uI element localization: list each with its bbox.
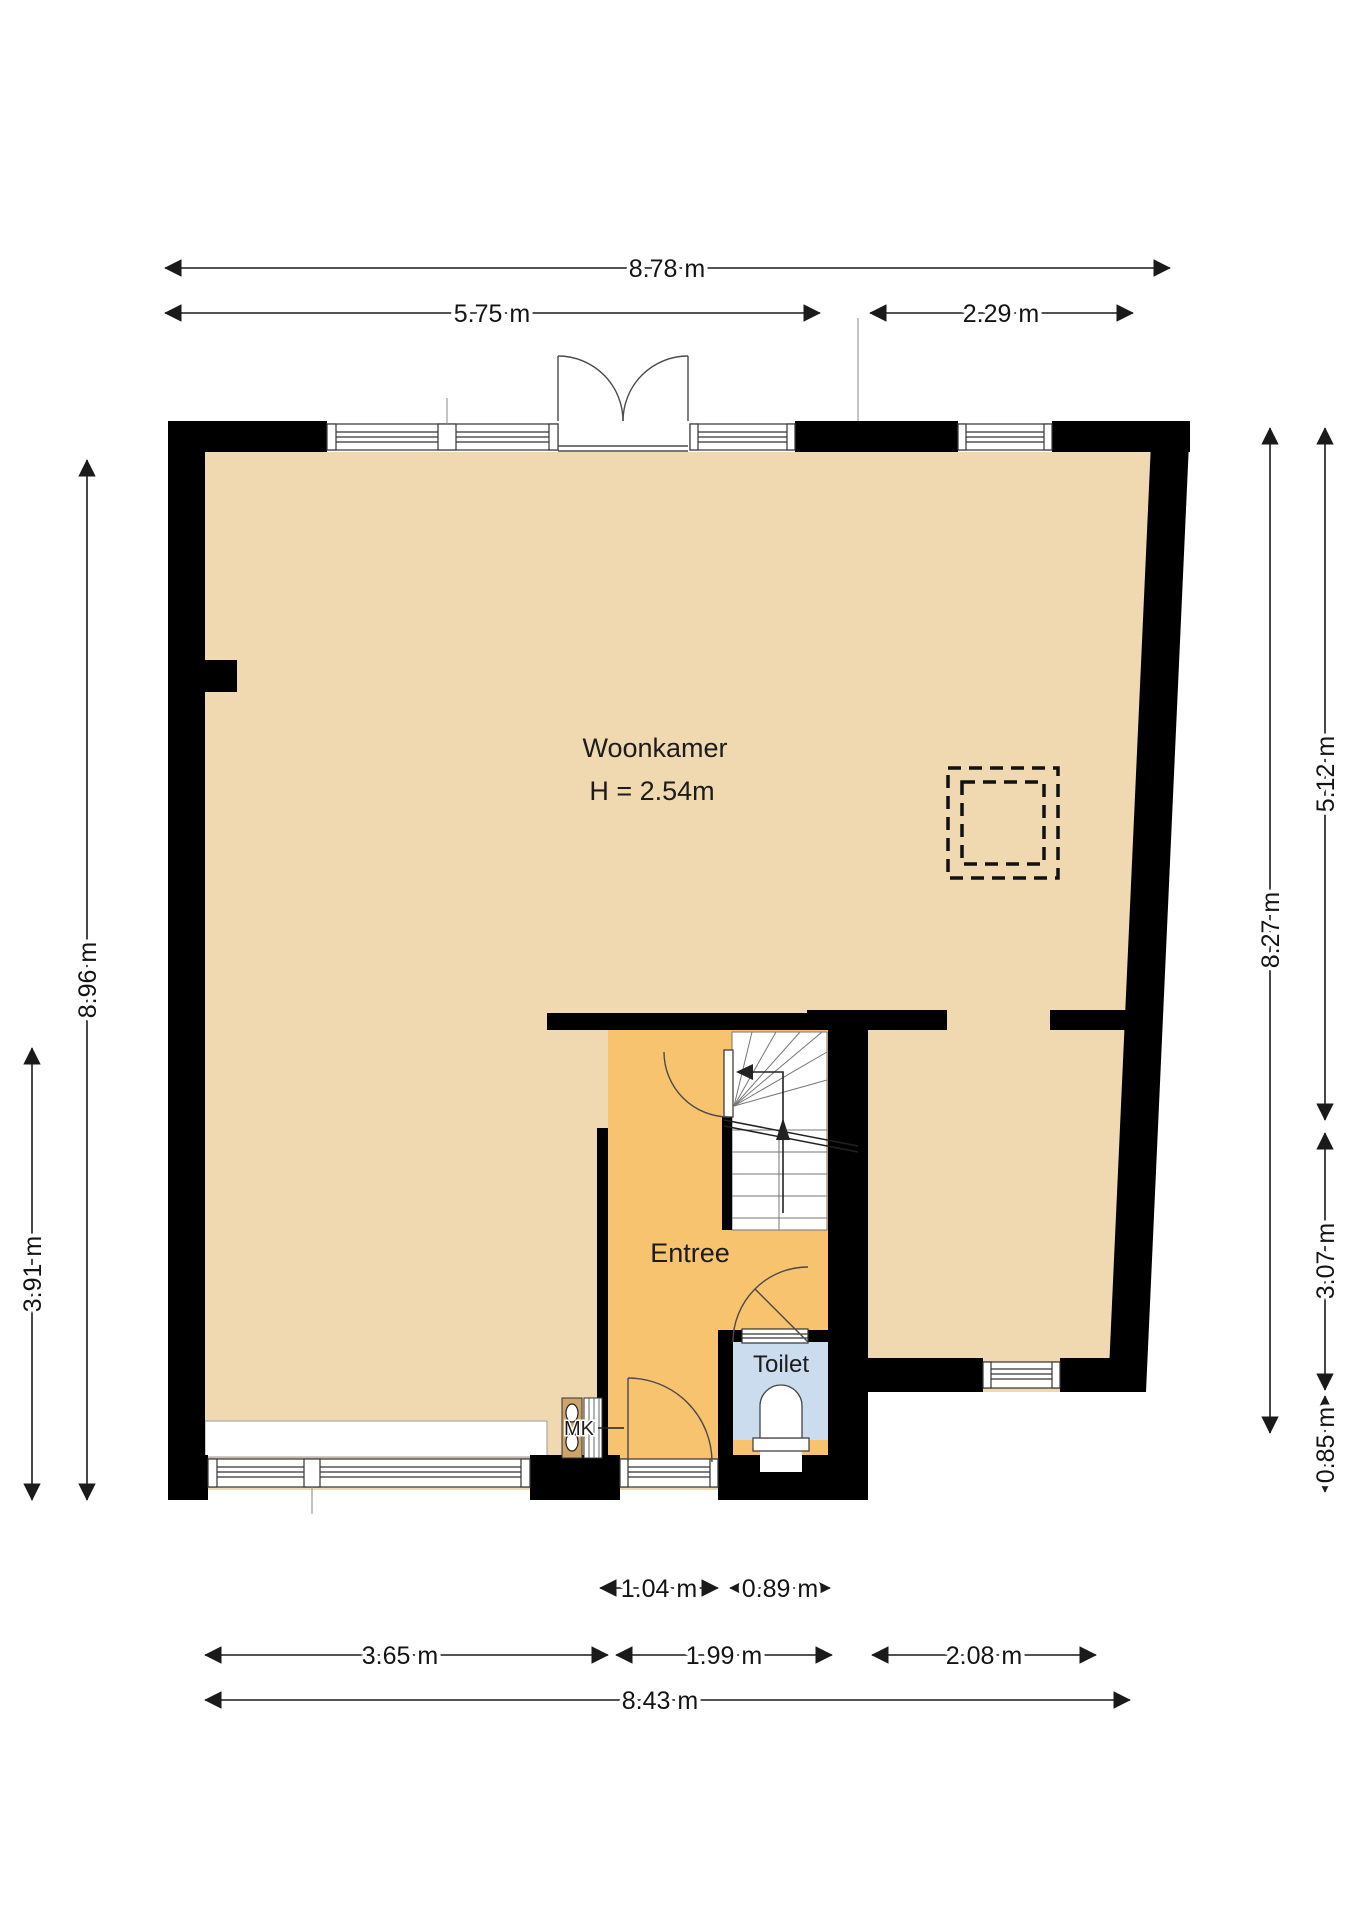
window-top-2 (690, 424, 795, 450)
dim-bottom-right: 2.08 m (946, 1642, 1022, 1670)
wall-left-notch (205, 660, 237, 692)
dim-left-full: 8.96 m (74, 942, 102, 1018)
wall-stair-left (722, 1117, 732, 1230)
wall-wing-top-right (1050, 1010, 1135, 1030)
wall-wing-top-left (807, 1010, 947, 1030)
dim-right-upper: 5.12 m (1312, 736, 1340, 812)
dim-top-left: 5.75 m (454, 300, 530, 328)
wall-left (168, 421, 205, 1500)
wall-wing-bottom-left (850, 1358, 983, 1392)
wall-entree-top (547, 1013, 807, 1030)
window-top-3 (958, 424, 1052, 450)
wall-toilet-left (718, 1330, 733, 1455)
window-bottom-left (208, 1459, 530, 1487)
dim-top-right: 2.29 m (963, 300, 1039, 328)
dim-right-bottom: 0.85 m (1312, 1407, 1340, 1483)
label-woonkamer: Woonkamer (582, 733, 727, 763)
dim-bottom-toilet: 0.89 m (742, 1575, 818, 1603)
wall-wing-bottom-right (1060, 1358, 1135, 1392)
wall-toilet-top-a (733, 1330, 742, 1342)
window-top-1 (327, 424, 558, 450)
double-door-top (558, 356, 688, 451)
dim-left-lower: 3.91 m (19, 1236, 47, 1312)
label-entree: Entree (650, 1238, 730, 1268)
toilet-fixture (753, 1385, 809, 1472)
label-woonkamer-height: H = 2.54m (589, 776, 714, 806)
dim-bottom-left: 3.65 m (362, 1642, 438, 1670)
dim-right-lower: 3.07 m (1312, 1223, 1340, 1299)
dim-bottom-middle: 1.99 m (686, 1642, 762, 1670)
floor-areas (205, 452, 1153, 1490)
toilet-door-frame (742, 1329, 808, 1343)
label-toilet: Toilet (753, 1351, 809, 1378)
front-door-threshold (620, 1459, 718, 1487)
wall-stair-right (828, 1010, 868, 1500)
label-meterkast: MK (564, 1418, 595, 1440)
floor-plan-drawing: Woonkamer H = 2.54m Entree Toilet MK 8.7… (0, 0, 1358, 1920)
wall-toilet-top-b (808, 1330, 828, 1342)
wall-bottom-corner (168, 1455, 208, 1500)
dim-right-full: 8.27 m (1257, 892, 1285, 968)
floor-plan-page: Woonkamer H = 2.54m Entree Toilet MK 8.7… (0, 0, 1358, 1920)
dim-bottom-total: 8.43 m (622, 1687, 698, 1715)
dim-top-total: 8.78 m (629, 255, 705, 283)
wall-top-mid (795, 421, 958, 452)
window-right-wing (983, 1362, 1060, 1388)
window-bay-recess (205, 1421, 547, 1457)
dim-bottom-door: 1.04 m (621, 1575, 697, 1603)
